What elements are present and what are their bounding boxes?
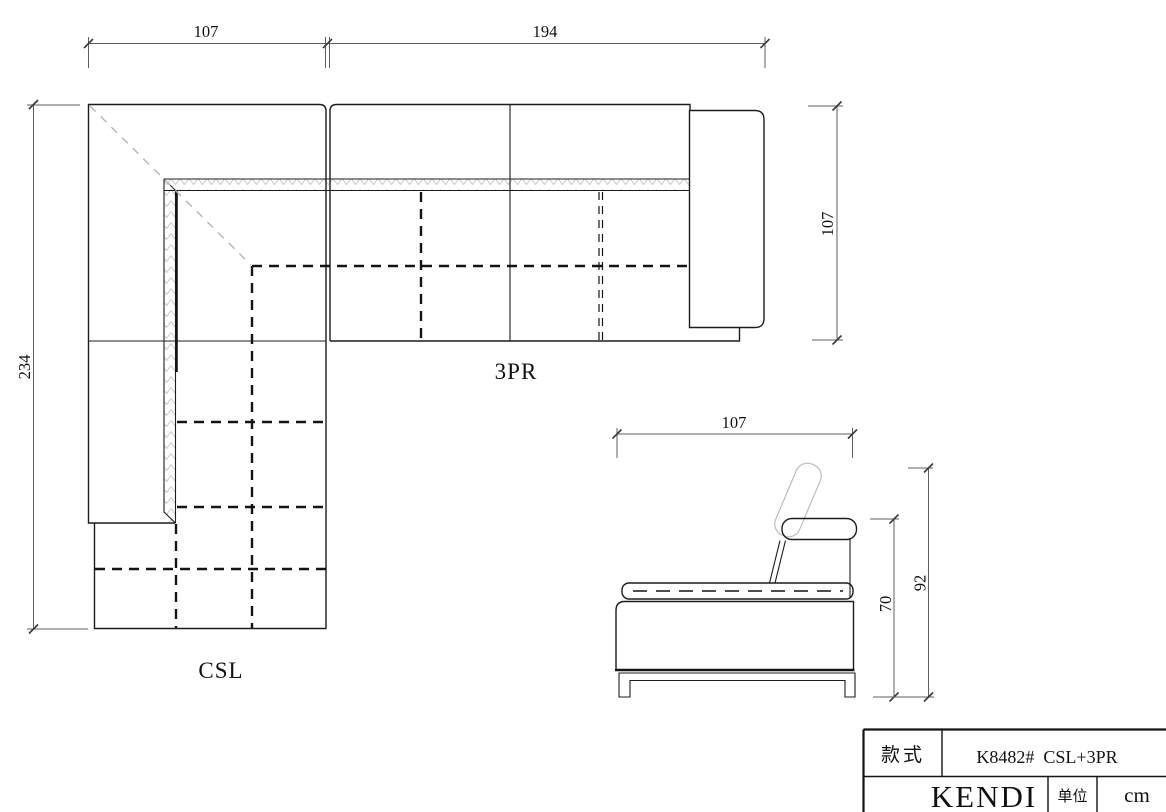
brand-cell: KENDI — [931, 779, 1037, 812]
title-block: 款式 K8482# CSL+3PR KENDI 单位 cm — [864, 730, 1166, 812]
seat-cushion — [622, 583, 853, 599]
sofa-base — [615, 602, 855, 671]
3pr-module-outline — [330, 105, 764, 342]
plan-view: 107 194 234 107 CSL 3PR — [15, 22, 843, 683]
dim-3pr-width-label: 194 — [533, 22, 558, 41]
back-band-hatch-vertical — [165, 191, 176, 522]
dim-plan-right: 107 — [808, 102, 843, 345]
side-view: 107 70 92 — [613, 413, 935, 702]
drawing-canvas: 107 194 234 107 CSL 3PR — [0, 0, 1166, 812]
armrest — [690, 111, 765, 328]
3pr-label: 3PR — [495, 359, 538, 384]
dim-side-top: 107 — [613, 413, 858, 458]
dim-total-height-label: 92 — [911, 575, 930, 592]
technical-drawing-sheet: 107 194 234 107 CSL 3PR — [0, 0, 1166, 812]
seat-split-lines — [95, 192, 689, 628]
dim-plan-left: 234 — [15, 100, 88, 634]
dim-plan-top: 107 194 — [84, 22, 770, 68]
dim-total-depth-label: 234 — [15, 355, 34, 380]
unit-label-cell: 单位 — [1057, 788, 1087, 805]
headrest-ghost — [771, 459, 825, 540]
dim-3pr-depth-label: 107 — [818, 212, 837, 237]
backrest — [770, 540, 851, 599]
dim-back-height: 70 — [870, 515, 899, 702]
dim-total-height: 92 — [873, 464, 934, 702]
leg-frame — [619, 673, 855, 697]
dim-side-depth-label: 107 — [722, 413, 747, 432]
dim-back-height-label: 70 — [876, 596, 895, 613]
back-band-lines — [164, 179, 690, 523]
back-band-hatch-horizontal — [165, 180, 690, 191]
dim-csl-width-label: 107 — [194, 22, 219, 41]
style-label-cell: 款式 — [881, 744, 925, 766]
csl-label: CSL — [198, 658, 243, 683]
unit-value-cell: cm — [1124, 783, 1150, 807]
model-cell: K8482# CSL+3PR — [976, 747, 1117, 767]
